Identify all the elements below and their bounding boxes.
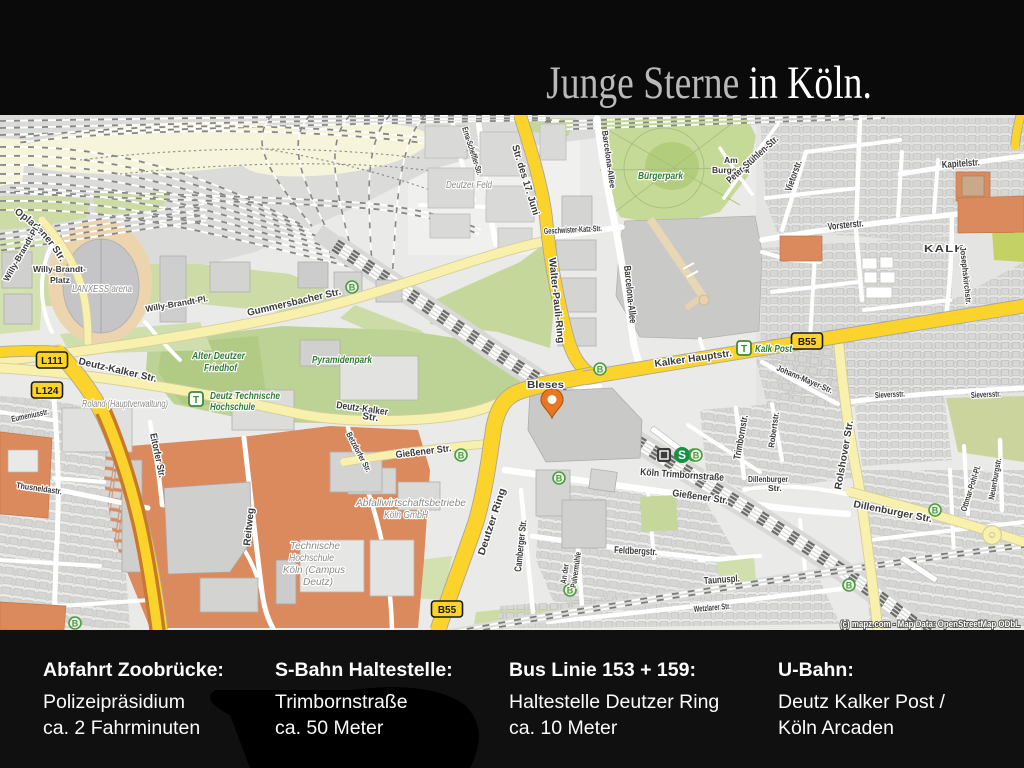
- svg-text:Sieversstr.: Sieversstr.: [971, 388, 1001, 400]
- svg-text:Hochschule: Hochschule: [289, 552, 334, 564]
- svg-text:Trimbornstraße: Trimbornstraße: [275, 691, 408, 713]
- svg-text:Technische: Technische: [290, 540, 340, 552]
- svg-text:Feldbergstr.: Feldbergstr.: [614, 545, 658, 558]
- svg-text:Willy-Brandt-: Willy-Brandt-: [33, 264, 86, 274]
- svg-text:Deutz): Deutz): [303, 576, 333, 588]
- svg-text:U-Bahn:: U-Bahn:: [778, 659, 854, 681]
- svg-text:L124: L124: [36, 386, 59, 397]
- svg-text:Junge Sterne in Köln.: Junge Sterne in Köln.: [546, 57, 872, 109]
- svg-text:Köln Arcaden: Köln Arcaden: [778, 717, 894, 739]
- svg-text:T: T: [193, 395, 199, 406]
- svg-text:S-Bahn Haltestelle:: S-Bahn Haltestelle:: [275, 659, 453, 681]
- svg-text:B: B: [693, 450, 700, 460]
- svg-text:Pyramidenpark: Pyramidenpark: [312, 355, 372, 366]
- svg-text:L111: L111: [41, 356, 63, 367]
- svg-text:Hochschule: Hochschule: [210, 402, 255, 413]
- svg-text:B: B: [72, 618, 79, 628]
- svg-text:B: B: [846, 580, 853, 590]
- svg-text:Platz: Platz: [50, 275, 70, 285]
- svg-text:Bleses: Bleses: [527, 380, 564, 391]
- svg-text:Deutz Technische: Deutz Technische: [210, 391, 280, 402]
- svg-text:Abfahrt Zoobrücke:: Abfahrt Zoobrücke:: [43, 659, 224, 681]
- svg-text:Alter Deutzer: Alter Deutzer: [191, 351, 246, 362]
- svg-text:Deutz Kalker Post /: Deutz Kalker Post /: [778, 691, 945, 713]
- svg-text:Am: Am: [724, 155, 738, 165]
- svg-text:Abfallwirtschaftsbetriebe: Abfallwirtschaftsbetriebe: [355, 497, 466, 509]
- svg-text:B: B: [597, 364, 604, 374]
- svg-text:B: B: [556, 473, 563, 483]
- svg-text:Roland (Hauptverwaltung): Roland (Hauptverwaltung): [82, 398, 168, 410]
- svg-text:Köln (Campus: Köln (Campus: [283, 564, 346, 576]
- svg-text:ca. 2 Fahrminuten: ca. 2 Fahrminuten: [43, 717, 200, 739]
- svg-text:ca. 10 Meter: ca. 10 Meter: [509, 717, 618, 739]
- svg-text:B55: B55: [438, 605, 457, 616]
- svg-text:Str.: Str.: [362, 411, 380, 424]
- svg-text:Haltestelle Deutzer Ring: Haltestelle Deutzer Ring: [509, 691, 719, 713]
- svg-text:ca. 50 Meter: ca. 50 Meter: [275, 717, 384, 739]
- svg-text:B: B: [349, 282, 356, 292]
- svg-text:T: T: [741, 344, 747, 355]
- svg-text:Bus Linie 153 + 159:: Bus Linie 153 + 159:: [509, 659, 696, 681]
- svg-text:LANXESS arena: LANXESS arena: [72, 283, 132, 295]
- svg-text:Str.: Str.: [768, 483, 782, 493]
- svg-text:S: S: [678, 448, 686, 462]
- svg-text:B55: B55: [798, 337, 817, 348]
- svg-text:Polizeipräsidium: Polizeipräsidium: [43, 691, 185, 713]
- svg-text:Kalk Post: Kalk Post: [755, 344, 793, 355]
- svg-text:Deutzer Feld: Deutzer Feld: [446, 179, 493, 191]
- svg-text:Bürgerpark: Bürgerpark: [638, 171, 683, 182]
- svg-text:B: B: [458, 450, 465, 460]
- svg-text:Sieversstr.: Sieversstr.: [875, 388, 905, 400]
- svg-text:Köln GmbH: Köln GmbH: [384, 509, 428, 521]
- svg-text:(c) mapz.com - Map Data: OpenS: (c) mapz.com - Map Data: OpenStreetMap O…: [840, 619, 1020, 630]
- svg-text:Friedhof: Friedhof: [204, 363, 238, 374]
